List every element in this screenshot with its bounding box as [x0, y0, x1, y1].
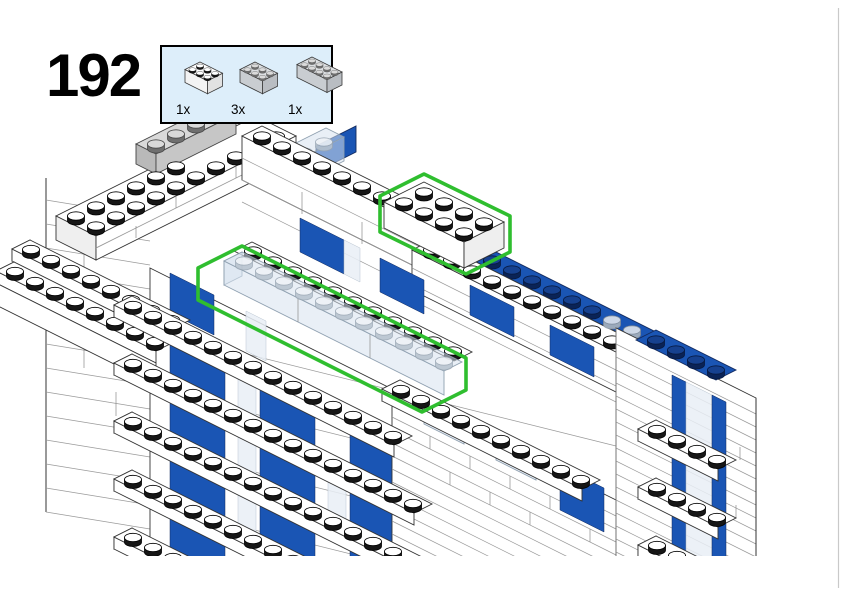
stud-icon — [533, 455, 550, 468]
stud-icon — [689, 503, 706, 516]
stud-icon — [276, 277, 293, 290]
render-cutoff — [0, 556, 842, 596]
masonry-line — [46, 512, 150, 529]
stud-icon — [285, 381, 302, 394]
stud-icon — [325, 459, 342, 472]
stud-icon — [211, 72, 218, 78]
stud-icon — [325, 517, 342, 530]
stud-icon — [43, 255, 60, 268]
stud-icon — [27, 277, 44, 290]
stud-icon — [205, 341, 222, 354]
stud-icon — [294, 152, 311, 165]
stud-icon — [225, 409, 242, 422]
stud-icon — [244, 68, 251, 74]
stud-icon — [148, 140, 165, 153]
stud-icon — [709, 513, 726, 526]
stud-icon — [648, 336, 665, 349]
stud-icon — [67, 297, 84, 310]
stud-icon — [473, 425, 490, 438]
stud-icon — [436, 218, 453, 231]
stud-icon — [553, 465, 570, 478]
stud-icon — [265, 487, 282, 500]
stud-icon — [23, 245, 40, 258]
stud-icon — [205, 399, 222, 412]
stud-icon — [456, 228, 473, 241]
stud-icon — [316, 138, 333, 151]
stud-icon — [225, 351, 242, 364]
stud-icon — [165, 379, 182, 392]
stud-icon — [47, 287, 64, 300]
stud-icon — [189, 68, 196, 74]
stud-icon — [345, 411, 362, 424]
parts-callout: 1x 3x 1x — [161, 46, 342, 123]
stud-icon — [345, 527, 362, 540]
stud-icon — [125, 417, 142, 430]
stud-icon — [254, 132, 271, 145]
stud-icon — [168, 130, 185, 143]
stud-icon — [296, 287, 313, 300]
stud-icon — [108, 192, 125, 205]
stud-icon — [168, 182, 185, 195]
stud-icon — [83, 275, 100, 288]
stud-icon — [145, 311, 162, 324]
stud-icon — [513, 445, 530, 458]
stud-icon — [165, 495, 182, 508]
stud-icon — [325, 401, 342, 414]
stud-icon — [331, 70, 338, 76]
stud-icon — [604, 316, 621, 329]
stud-icon — [649, 425, 666, 438]
stud-icon — [334, 172, 351, 185]
stud-icon — [484, 276, 501, 289]
stud-icon — [305, 507, 322, 520]
stud-icon — [165, 437, 182, 450]
part-count-1: 1x — [176, 102, 191, 117]
stud-icon — [145, 427, 162, 440]
stud-icon — [148, 192, 165, 205]
stud-icon — [405, 499, 422, 512]
stud-icon — [185, 389, 202, 402]
part-count-3: 1x — [288, 102, 303, 117]
stud-icon — [385, 489, 402, 502]
stud-icon — [205, 515, 222, 528]
stud-icon — [265, 429, 282, 442]
stud-icon — [265, 371, 282, 384]
right-wing — [616, 328, 756, 596]
stud-icon — [259, 68, 266, 74]
stud-icon — [266, 72, 273, 78]
stud-icon — [416, 347, 433, 360]
stud-icon — [185, 505, 202, 518]
masonry-line — [46, 392, 150, 409]
stud-icon — [145, 485, 162, 498]
stud-icon — [128, 202, 145, 215]
stud-icon — [251, 71, 258, 77]
stud-icon — [584, 326, 601, 339]
stud-icon — [385, 431, 402, 444]
stud-icon — [476, 218, 493, 231]
stud-icon — [125, 301, 142, 314]
stud-icon — [323, 67, 330, 73]
stud-icon — [305, 391, 322, 404]
stud-icon — [285, 497, 302, 510]
stud-icon — [245, 535, 262, 548]
wall-stripe — [672, 375, 686, 563]
stud-icon — [125, 359, 142, 372]
stud-icon — [396, 337, 413, 350]
stud-icon — [453, 415, 470, 428]
stud-icon — [416, 188, 433, 201]
stud-icon — [524, 296, 541, 309]
stud-icon — [365, 537, 382, 550]
stud-icon — [669, 435, 686, 448]
stud-icon — [88, 202, 105, 215]
wall-stripe — [344, 240, 360, 282]
stud-icon — [456, 208, 473, 221]
stud-icon — [125, 533, 142, 546]
stud-icon — [128, 182, 145, 195]
part-count-2: 3x — [231, 102, 246, 117]
stud-icon — [668, 346, 685, 359]
stud-icon — [68, 212, 85, 225]
stud-icon — [245, 419, 262, 432]
stud-icon — [316, 70, 323, 76]
stud-icon — [204, 68, 211, 74]
stud-icon — [148, 172, 165, 185]
stud-icon — [436, 357, 453, 370]
stud-icon — [125, 475, 142, 488]
stud-icon — [245, 361, 262, 374]
stud-icon — [689, 445, 706, 458]
stud-icon — [108, 212, 125, 225]
stud-icon — [649, 483, 666, 496]
stud-icon — [669, 493, 686, 506]
stud-icon — [256, 267, 273, 280]
stud-icon — [493, 435, 510, 448]
stud-icon — [245, 477, 262, 490]
stud-icon — [416, 208, 433, 221]
step-number: 192 — [46, 42, 140, 109]
lego-instruction-page: 192 1x 3x 1x — [0, 0, 842, 596]
stud-icon — [103, 285, 120, 298]
stud-icon — [225, 467, 242, 480]
stud-icon — [236, 257, 253, 270]
stud-icon — [365, 479, 382, 492]
stud-icon — [205, 457, 222, 470]
stud-icon — [185, 331, 202, 344]
stud-icon — [708, 366, 725, 379]
stud-icon — [544, 306, 561, 319]
stud-icon — [225, 525, 242, 538]
stud-icon — [688, 356, 705, 369]
stud-icon — [336, 307, 353, 320]
stud-icon — [365, 421, 382, 434]
stud-icon — [314, 162, 331, 175]
stud-icon — [308, 59, 315, 65]
stud-icon — [345, 469, 362, 482]
stud-icon — [308, 66, 315, 72]
stud-icon — [185, 447, 202, 460]
stud-icon — [188, 172, 205, 185]
stud-icon — [165, 321, 182, 334]
stud-icon — [7, 267, 24, 280]
stud-icon — [196, 71, 203, 77]
stud-icon — [354, 182, 371, 195]
stud-icon — [145, 543, 162, 556]
stud-icon — [196, 64, 203, 70]
stud-icon — [649, 541, 666, 554]
stud-icon — [396, 198, 413, 211]
stud-icon — [274, 142, 291, 155]
stud-icon — [316, 63, 323, 69]
stud-icon — [168, 162, 185, 175]
stud-icon — [376, 327, 393, 340]
stud-icon — [305, 449, 322, 462]
stud-icon — [204, 75, 211, 81]
stud-icon — [356, 317, 373, 330]
stud-icon — [63, 265, 80, 278]
stud-icon — [251, 64, 258, 70]
stud-icon — [301, 63, 308, 69]
stud-icon — [316, 297, 333, 310]
stud-icon — [323, 74, 330, 80]
stud-icon — [208, 162, 225, 175]
stud-icon — [259, 75, 266, 81]
stud-icon — [504, 286, 521, 299]
stud-icon — [436, 198, 453, 211]
stud-icon — [87, 307, 104, 320]
stud-icon — [564, 316, 581, 329]
stud-icon — [573, 475, 590, 488]
stud-icon — [145, 369, 162, 382]
stud-icon — [88, 222, 105, 235]
stud-icon — [709, 455, 726, 468]
stud-icon — [285, 439, 302, 452]
building-illustration: 192 1x 3x 1x — [0, 0, 842, 596]
